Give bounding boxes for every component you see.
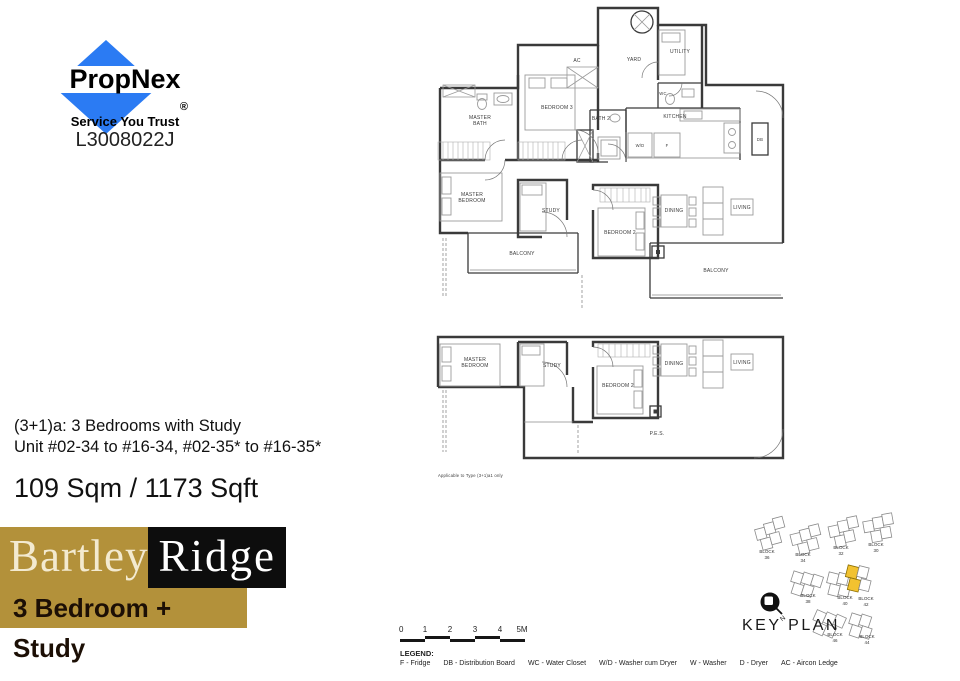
room-label-bedroom3: BEDROOM 3 bbox=[541, 105, 573, 111]
room-label-ac: AC bbox=[573, 58, 581, 64]
svg-text:44: 44 bbox=[864, 640, 870, 645]
project-subtitle: 3 Bedroom + Study bbox=[0, 588, 247, 628]
svg-text:BLOCK: BLOCK bbox=[759, 549, 774, 554]
lower-floorplan: MASTER BEDROOM STUDY BEDROOM 2 DINING LI… bbox=[430, 330, 790, 485]
svg-text:36: 36 bbox=[764, 555, 770, 560]
propnex-name: PropNex bbox=[69, 64, 180, 95]
room-label-dining: DINING bbox=[665, 208, 684, 214]
block-36-cluster bbox=[753, 516, 789, 551]
room-label-balcony-right: BALCONY bbox=[703, 268, 729, 274]
svg-text:38: 38 bbox=[805, 599, 811, 604]
legend-item: W/D - Washer cum Dryer bbox=[599, 660, 677, 667]
unit-info: (3+1)a: 3 Bedrooms with Study Unit #02-3… bbox=[14, 416, 321, 458]
key-plan-title: KEY PLAN bbox=[742, 617, 840, 635]
room-label-living: LIVING bbox=[733, 360, 751, 366]
svg-text:BLOCK: BLOCK bbox=[859, 634, 874, 639]
legend-heading: LEGEND: bbox=[400, 649, 750, 658]
room-label-yard: YARD bbox=[627, 57, 642, 63]
svg-text:40: 40 bbox=[842, 601, 848, 606]
svg-text:34: 34 bbox=[800, 558, 806, 563]
highlighted-unit bbox=[847, 578, 861, 592]
room-label-kitchen: KITCHEN bbox=[663, 114, 687, 120]
legend-item: WC - Water Closet bbox=[528, 660, 586, 667]
registered-mark: ® bbox=[180, 101, 188, 113]
unit-area: 109 Sqm / 1173 Sqft bbox=[14, 473, 258, 504]
block-32-cluster bbox=[827, 516, 862, 549]
room-label-fridge: F bbox=[666, 143, 669, 148]
upper-floorplan: MASTER BATH BEDROOM 3 AC YARD UTILITY WC… bbox=[430, 5, 790, 310]
unit-range-line: Unit #02-34 to #16-34, #02-35* to #16-35… bbox=[14, 437, 321, 458]
room-label-bedroom2: BEDROOM 2 bbox=[604, 230, 636, 236]
room-label-pes: P.E.S. bbox=[650, 431, 665, 437]
highlighted-unit bbox=[845, 565, 859, 579]
room-label-living: LIVING bbox=[733, 205, 751, 211]
svg-text:BLOCK: BLOCK bbox=[837, 595, 852, 600]
svg-text:BLOCK: BLOCK bbox=[868, 542, 883, 547]
svg-text:BLOCK: BLOCK bbox=[858, 596, 873, 601]
legend-item: W - Washer bbox=[690, 660, 727, 667]
room-label-dining: DINING bbox=[665, 361, 684, 367]
svg-text:46: 46 bbox=[832, 638, 838, 643]
room-label-bedroom2: BEDROOM 2 bbox=[602, 383, 634, 389]
legend-item: D - Dryer bbox=[740, 660, 768, 667]
svg-text:BLOCK: BLOCK bbox=[795, 552, 810, 557]
propnex-tagline: Service You Trust bbox=[40, 114, 210, 129]
legend-item: DB - Distribution Board bbox=[443, 660, 515, 667]
svg-text:32: 32 bbox=[838, 551, 844, 556]
scale-bar: 0 1 2 3 4 5M bbox=[400, 625, 540, 647]
legend-item: AC - Aircon Ledge bbox=[781, 660, 838, 667]
svg-text:BEDROOM: BEDROOM bbox=[461, 363, 488, 369]
room-label-bath2: BATH 2 bbox=[592, 116, 610, 122]
project-name-left: Bartley bbox=[0, 527, 148, 588]
svg-text:BATH: BATH bbox=[473, 121, 487, 127]
room-label-wd: W/D bbox=[636, 143, 645, 148]
room-label-wc: WC bbox=[659, 91, 666, 96]
room-label-study: STUDY bbox=[543, 363, 561, 369]
room-label-db: DB bbox=[757, 137, 763, 142]
plan-caption: Applicable to Type (3+1)a1 only bbox=[438, 473, 504, 478]
svg-text:30: 30 bbox=[873, 548, 879, 553]
block-30-cluster bbox=[862, 513, 896, 544]
project-name-right: Ridge bbox=[148, 527, 286, 588]
svg-text:BLOCK: BLOCK bbox=[833, 545, 848, 550]
propnex-logo: PropNex ® Service You Trust L3008022J bbox=[40, 28, 210, 158]
room-label-study: STUDY bbox=[542, 208, 560, 214]
brochure-page: PropNex ® Service You Trust L3008022J bbox=[0, 0, 960, 681]
propnex-license-number: L3008022J bbox=[40, 129, 210, 152]
room-label-balcony-left: BALCONY bbox=[509, 251, 535, 257]
legend: LEGEND: F - Fridge DB - Distribution Boa… bbox=[400, 649, 750, 667]
project-logo: Bartley Ridge 3 Bedroom + Study bbox=[0, 527, 247, 628]
room-label-utility: UTILITY bbox=[670, 49, 690, 55]
legend-item: F - Fridge bbox=[400, 660, 430, 667]
svg-text:BLOCK: BLOCK bbox=[800, 593, 815, 598]
unit-type-line: (3+1)a: 3 Bedrooms with Study bbox=[14, 416, 321, 437]
svg-text:42: 42 bbox=[863, 602, 869, 607]
svg-text:BEDROOM: BEDROOM bbox=[458, 198, 485, 204]
